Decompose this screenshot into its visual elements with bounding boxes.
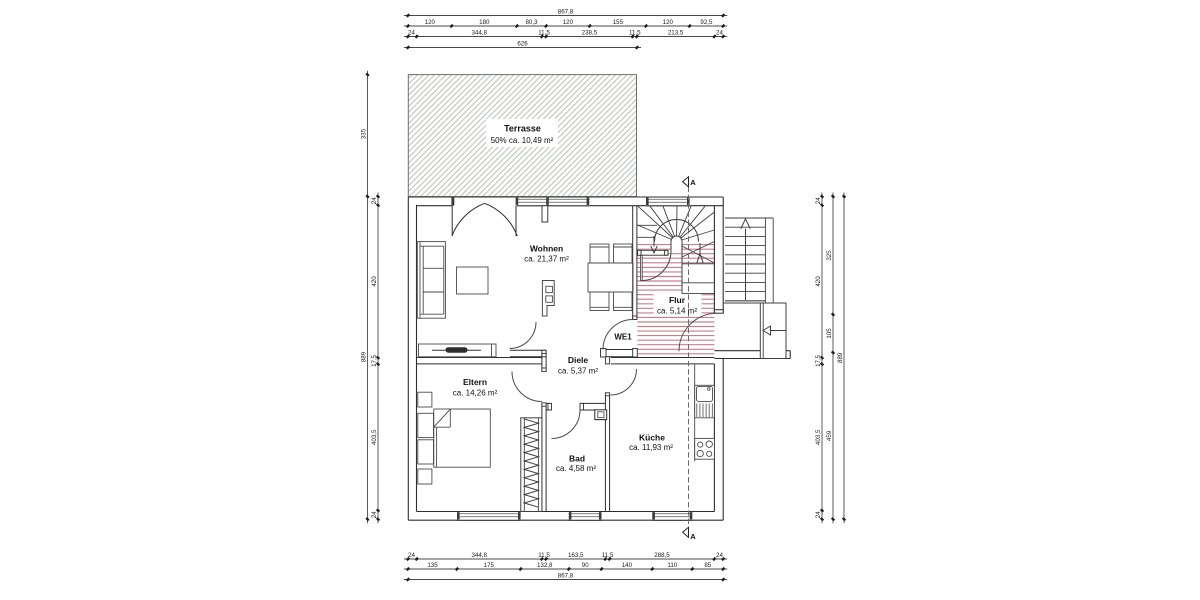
svg-text:11,5: 11,5 — [538, 552, 550, 559]
svg-text:Diele: Diele — [568, 355, 589, 365]
svg-text:238,5: 238,5 — [582, 30, 598, 37]
svg-text:403,5: 403,5 — [371, 429, 378, 445]
svg-text:626: 626 — [517, 41, 528, 48]
svg-text:11,5: 11,5 — [629, 30, 641, 37]
svg-text:80,3: 80,3 — [525, 19, 538, 26]
svg-text:17,5: 17,5 — [815, 354, 822, 367]
svg-text:24: 24 — [815, 511, 822, 518]
svg-text:ca. 4,58 m²: ca. 4,58 m² — [556, 464, 596, 473]
svg-text:92,5: 92,5 — [700, 19, 713, 26]
svg-text:90: 90 — [582, 562, 589, 569]
svg-text:24: 24 — [408, 552, 415, 559]
svg-text:155: 155 — [613, 19, 624, 26]
svg-text:867,8: 867,8 — [558, 9, 574, 16]
svg-text:24: 24 — [716, 552, 723, 559]
svg-text:120: 120 — [425, 19, 436, 26]
svg-text:889: 889 — [361, 351, 368, 362]
svg-text:867,8: 867,8 — [558, 573, 574, 580]
svg-text:325: 325 — [826, 250, 833, 261]
svg-text:24: 24 — [371, 197, 378, 204]
svg-text:132,8: 132,8 — [537, 562, 553, 569]
svg-text:11,5: 11,5 — [602, 552, 614, 559]
svg-text:Bad: Bad — [569, 454, 585, 464]
svg-text:889: 889 — [837, 352, 844, 363]
svg-text:120: 120 — [563, 19, 574, 26]
svg-text:420: 420 — [815, 276, 822, 287]
svg-text:24: 24 — [716, 30, 723, 37]
svg-text:ca. 5,37 m²: ca. 5,37 m² — [558, 367, 598, 376]
svg-text:85: 85 — [704, 562, 711, 569]
svg-text:24: 24 — [815, 197, 822, 204]
svg-text:180: 180 — [479, 19, 490, 26]
svg-text:24: 24 — [371, 511, 378, 518]
svg-text:A: A — [690, 532, 696, 541]
svg-text:110: 110 — [667, 562, 677, 569]
svg-text:344,8: 344,8 — [472, 30, 488, 37]
svg-text:335: 335 — [361, 128, 368, 139]
svg-text:163,5: 163,5 — [568, 552, 584, 559]
svg-text:A: A — [690, 178, 696, 187]
svg-text:24: 24 — [408, 30, 415, 37]
svg-text:140: 140 — [622, 562, 633, 569]
svg-text:213,5: 213,5 — [668, 30, 684, 37]
svg-text:50% ca. 10,49 m²: 50% ca. 10,49 m² — [491, 136, 554, 145]
svg-text:403,5: 403,5 — [815, 429, 822, 445]
svg-text:Flur: Flur — [669, 295, 686, 305]
svg-text:344,8: 344,8 — [472, 552, 488, 559]
svg-text:ca. 11,93 m²: ca. 11,93 m² — [629, 443, 673, 452]
svg-text:Terrasse: Terrasse — [504, 124, 541, 134]
svg-text:ca. 14,26 m²: ca. 14,26 m² — [453, 389, 498, 398]
svg-text:Küche: Küche — [639, 433, 665, 443]
svg-text:120: 120 — [663, 19, 674, 26]
svg-text:ca. 21,37 m²: ca. 21,37 m² — [524, 255, 569, 264]
svg-text:Wohnen: Wohnen — [530, 244, 563, 254]
svg-text:105: 105 — [826, 328, 833, 339]
svg-text:288,5: 288,5 — [654, 552, 670, 559]
svg-text:135: 135 — [427, 562, 438, 569]
svg-text:Eltern: Eltern — [463, 377, 487, 387]
svg-text:ca. 5,14 m²: ca. 5,14 m² — [657, 307, 697, 316]
svg-text:420: 420 — [371, 276, 378, 287]
svg-text:175: 175 — [484, 562, 495, 569]
svg-text:WE1: WE1 — [614, 333, 632, 342]
svg-text:459: 459 — [826, 430, 833, 441]
svg-text:17,5: 17,5 — [371, 354, 378, 367]
svg-text:11,5: 11,5 — [538, 30, 550, 37]
